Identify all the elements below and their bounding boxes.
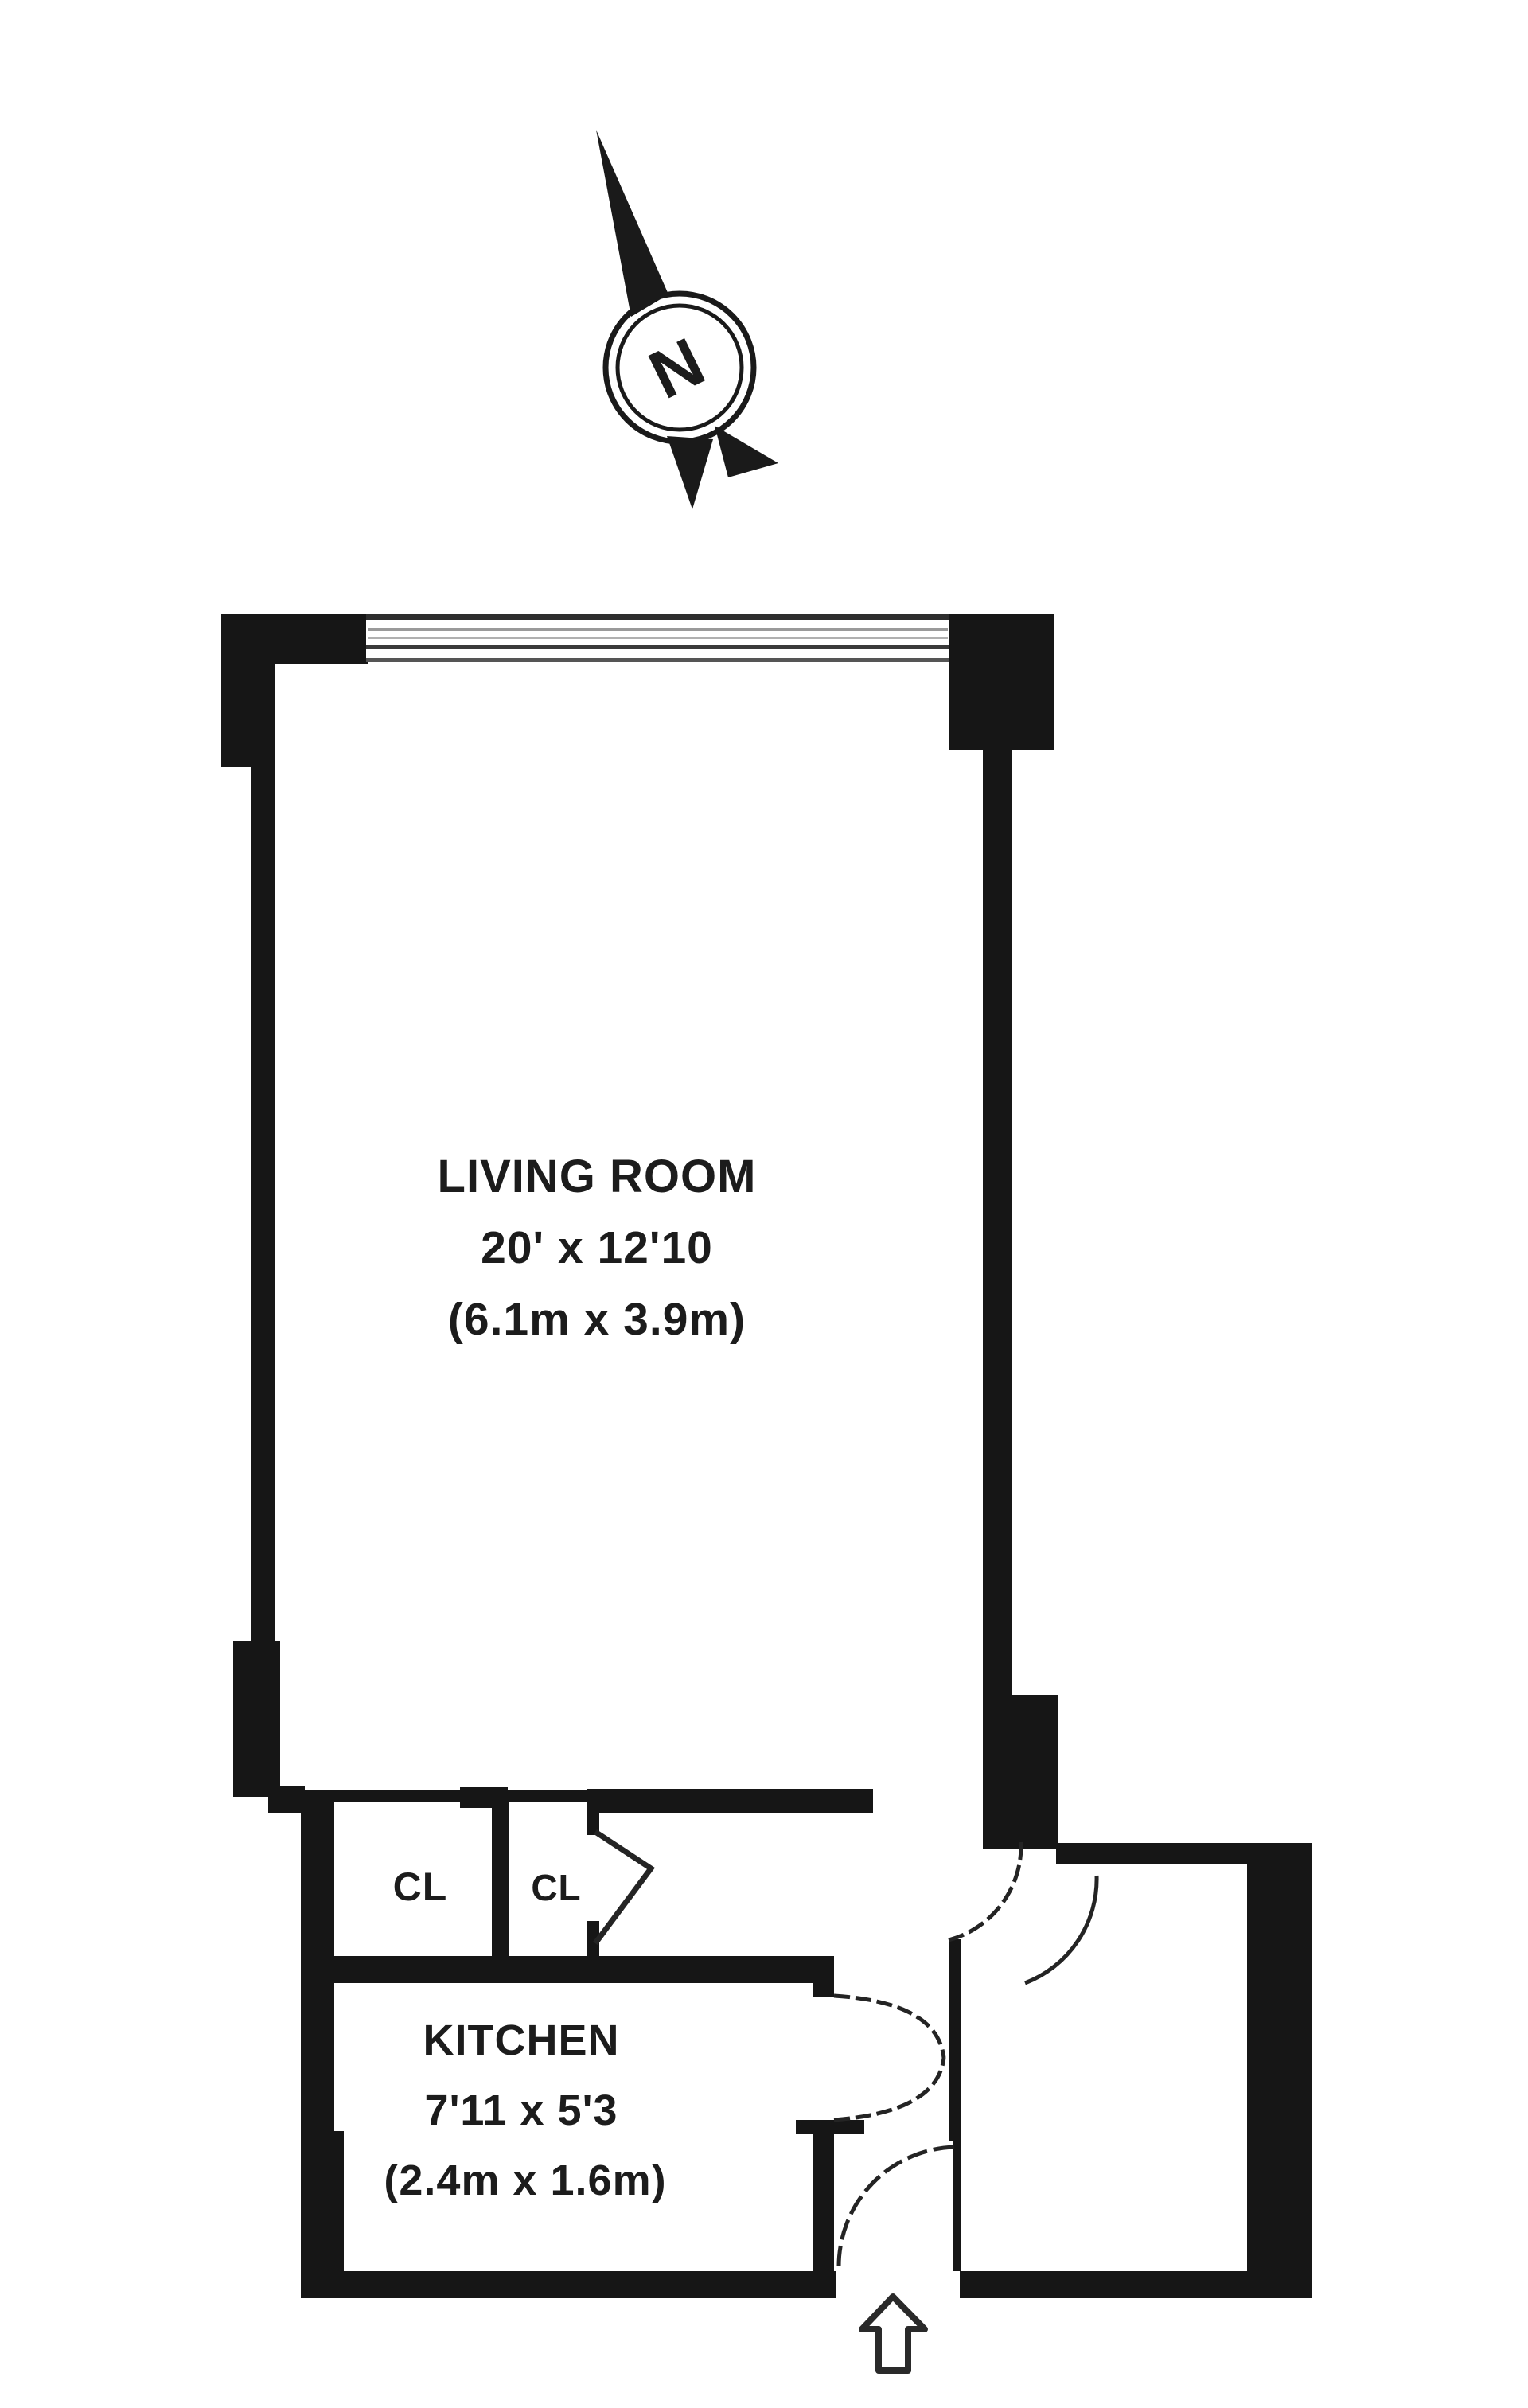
living-room-name: LIVING ROOM: [318, 1154, 875, 1200]
compass-tail-fin-southeast: [715, 426, 778, 477]
wall-left-upper: [251, 761, 275, 1644]
wall-foyer-right: [1247, 1843, 1312, 2298]
wall-closet-right-jamb-top: [587, 1800, 599, 1835]
closet-left-label: CL: [380, 1867, 460, 1907]
compass-tail-fin-south: [667, 436, 713, 509]
kitchen-name: KITCHEN: [298, 2019, 744, 2062]
window-mullion-light-2: [368, 637, 948, 639]
window-inner-line: [366, 658, 949, 662]
wall-foyer-left-thin: [949, 1939, 961, 2141]
wall-left-column: [233, 1641, 280, 1797]
compass-rose: [596, 130, 778, 509]
wall-south-band-right: [587, 1789, 873, 1813]
wall-bottom-right: [960, 2271, 1312, 2298]
wall-top-left-corner: [221, 662, 275, 767]
wall-top-left-band: [221, 614, 368, 664]
window-outer-line: [366, 614, 949, 620]
wall-closet-divider: [492, 1802, 509, 1958]
closet-right-label: CL: [516, 1869, 596, 1906]
entry-arrow-icon: [862, 2297, 925, 2371]
living-room-size-metric: (6.1m x 3.9m): [318, 1297, 875, 1342]
floor-plan-drawing: [0, 0, 1528, 2408]
kitchen-size-imperial: 7'11 x 5'3: [298, 2089, 744, 2132]
wall-kitchen-right-upper: [813, 1956, 834, 1997]
wall-right: [983, 748, 1012, 1698]
wall-right-column: [983, 1695, 1058, 1849]
entry-door-leaf: [953, 2141, 961, 2271]
window-living-room: [366, 614, 949, 662]
wall-top-right-band: [949, 614, 1054, 664]
door-arc-entrance: [839, 2147, 958, 2266]
door-arc-living-room: [949, 1842, 1021, 1940]
window-mullion-dark: [366, 645, 949, 649]
wall-kitchen-stub: [796, 2120, 864, 2134]
door-arc-foyer: [1025, 1876, 1097, 1983]
wall-kitchen-top: [318, 1956, 834, 1983]
floor-plan: N LIVING ROOM 20' x 12'10 (6.1m x 3.9m) …: [0, 0, 1528, 2408]
wall-kitchen-right-lower: [813, 2122, 834, 2273]
door-bifold-closet: [595, 1832, 651, 1943]
wall-top-right-corner: [949, 662, 1054, 750]
window-mullion-light-1: [368, 628, 948, 631]
door-arc-kitchen-upper: [834, 1996, 944, 2058]
living-room-size-imperial: 20' x 12'10: [318, 1225, 875, 1271]
compass-needle-icon: [596, 130, 668, 317]
door-arc-kitchen-lower: [834, 2058, 944, 2120]
kitchen-size-metric: (2.4m x 1.6m): [302, 2159, 748, 2202]
wall-bottom-left: [301, 2271, 836, 2298]
